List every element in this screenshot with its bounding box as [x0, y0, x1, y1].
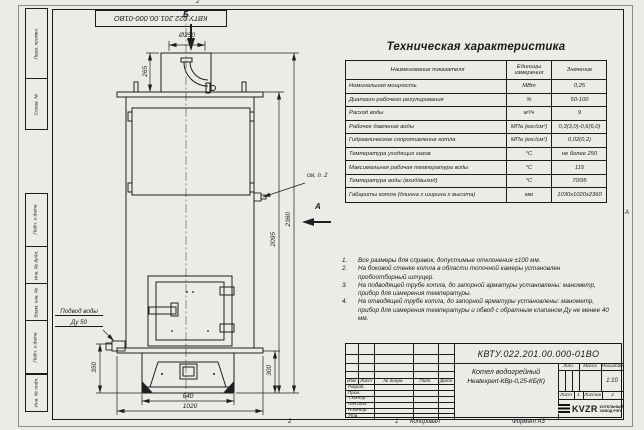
spec-cell: не более 250	[552, 148, 607, 162]
section-label-top: Б	[183, 11, 189, 19]
dim-2095: 2095	[271, 219, 278, 259]
spec-cell: Расход воды	[346, 107, 507, 121]
title-block-line	[346, 354, 454, 355]
note-number: 4.	[338, 298, 358, 323]
drawing-sheet: Перв. примен. Справ. № Подп. и дата Инв.…	[0, 0, 644, 430]
leader-lines	[103, 183, 305, 341]
product-name-line2: Heatexpert-КВр-0,25-КБ(К)	[454, 378, 558, 385]
view-arrow-side	[302, 218, 331, 226]
view-label-side: А	[315, 203, 321, 211]
callout-water-inlet-line1: Подвод воды	[55, 309, 103, 316]
spec-cell: Рабочее давление воды	[346, 121, 507, 135]
copied-label: Копировал	[410, 419, 440, 425]
spec-table: Наименование показателя Единицы измерени…	[345, 60, 607, 203]
spec-cell: 50-100	[552, 94, 607, 108]
spec-cell: Гидравлическое сопротивление котла	[346, 134, 507, 148]
furnace-door	[148, 276, 234, 346]
product-name-line1: Котел водогрейный	[454, 367, 558, 376]
title-block-line	[346, 363, 454, 364]
base-pedestal	[142, 353, 234, 393]
spec-cell: МПа (кгс/см²)	[507, 134, 552, 148]
spec-cell: 0,25	[552, 80, 607, 94]
mass-label: Масса	[579, 363, 601, 370]
role-utv: Утв.	[346, 413, 376, 419]
dim-640: 640	[168, 394, 208, 401]
format-label: Формат А3	[512, 419, 545, 425]
sheets-total: 2	[602, 391, 623, 399]
dim-350: 350	[92, 347, 99, 387]
spec-cell: Температура уходящих газов	[346, 148, 507, 162]
spec-cell: 0,3(3,0)-0,6(6,0)	[552, 121, 607, 135]
sample-fitting	[254, 193, 266, 201]
spec-cell: °С	[507, 148, 552, 162]
spec-cell: °С	[507, 175, 552, 189]
title-block: Изм. Лист № докум. Подп. Дата Разраб. Пр…	[345, 343, 622, 418]
water-inlet-fitting	[106, 341, 125, 351]
spec-table-title: Техническая характеристика	[345, 41, 607, 53]
scale-value: 1:10	[601, 370, 623, 391]
note-item: 3. На подводящей трубе котла, до запорно…	[338, 282, 610, 299]
note-item: 4. На отводящей трубе котла, до запорной…	[338, 298, 610, 323]
title-block-line	[572, 370, 573, 391]
spec-col-header-name: Наименование показателя	[346, 61, 507, 80]
spec-col-header-units: Единицы измерения	[507, 61, 552, 80]
dim-265: 265	[143, 51, 150, 91]
spec-cell: Диапазон рабочего регулирования	[346, 94, 507, 108]
dim-2360: 2360	[286, 199, 293, 239]
note-text: На боковой стенке котла в области топочн…	[358, 265, 610, 282]
spec-cell: %	[507, 94, 552, 108]
revision-col-data: Дата	[438, 378, 454, 384]
title-block-line	[346, 371, 454, 372]
company-name-line2: ЗАВОД РЭП	[600, 409, 623, 413]
note-number: 1.	[338, 257, 358, 265]
sheet-label: Лист	[558, 391, 574, 399]
product-name: Котел водогрейный Heatexpert-КВр-0,25-КБ…	[454, 363, 558, 419]
dim-300: 300	[267, 350, 274, 390]
spec-cell: Температура воды (вход/выход)	[346, 175, 507, 189]
note-text: На подводящей трубе котла, до запорной а…	[358, 282, 610, 299]
access-panel	[128, 108, 254, 195]
dim-1020: 1020	[170, 404, 210, 411]
callout-water-inlet-line2: Ду 50	[55, 320, 103, 327]
spec-cell: 115	[552, 161, 607, 175]
revision-col-docnum: № докум.	[374, 378, 413, 384]
note-number: 2.	[338, 265, 358, 282]
lit-label: Лит.	[558, 363, 579, 370]
spec-cell: Максимальная рабочая температура воды	[346, 161, 507, 175]
spec-cell: мм	[507, 188, 552, 202]
spec-cell: МВт	[507, 80, 552, 94]
doc-number: КВТУ.022.201.00.000-01ВО	[454, 344, 623, 363]
spec-cell: 9	[552, 107, 607, 121]
boiler-outline	[117, 53, 263, 353]
spec-cell: Габариты котла (длинна х ширина х высота…	[346, 188, 507, 202]
spec-col-header-value: Значение	[552, 61, 607, 80]
spec-cell: 0,02(0,2)	[552, 134, 607, 148]
note-number: 3.	[338, 282, 358, 299]
sheet-number: 1	[574, 391, 583, 399]
spec-cell: м³/ч	[507, 107, 552, 121]
kvzr-logo-icon	[558, 404, 570, 414]
dim-chimney-diameter: Ø250	[167, 33, 207, 40]
note-text: На отводящей трубе котла, до запорной ар…	[358, 298, 610, 323]
scale-label: Масштаб	[601, 363, 623, 370]
spec-cell: МПа (кгс/см²)	[507, 121, 552, 135]
spec-cell: Номинальная мощность	[346, 80, 507, 94]
title-block-line	[565, 370, 566, 391]
company-block: KVZR КОТЕЛЬНЫЙ ЗАВОД РЭП	[558, 399, 623, 419]
company-name: КОТЕЛЬНЫЙ ЗАВОД РЭП	[600, 405, 623, 414]
brand-name: KVZR	[572, 404, 598, 414]
sheets-label: Листов	[583, 391, 602, 399]
spec-cell: °С	[507, 161, 552, 175]
note-item: 2. На боковой стенке котла в области топ…	[338, 265, 610, 282]
notes-list: 1. Все размеры для справок, допустимые о…	[338, 257, 610, 323]
spec-cell: 1030х1020х2360	[552, 188, 607, 202]
revision-col-podp: Подп.	[413, 378, 438, 384]
spec-cell: 70/95	[552, 175, 607, 189]
callout-sample-port: см. п. 2	[307, 173, 327, 179]
